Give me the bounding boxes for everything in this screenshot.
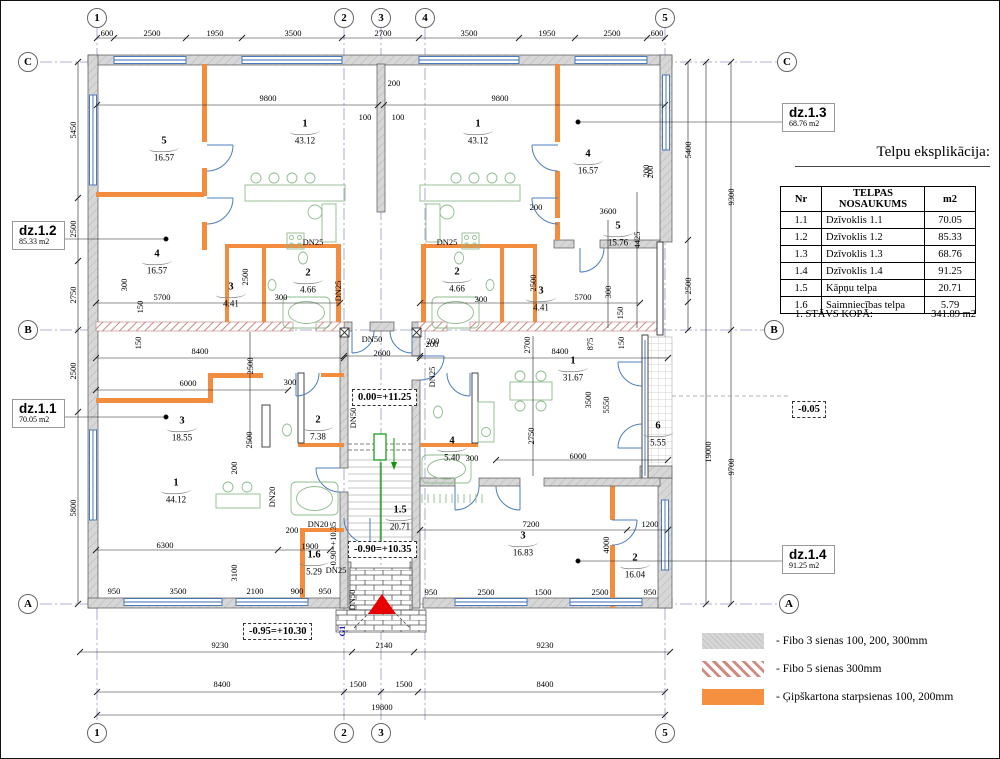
dim-label: 8400 — [192, 347, 209, 356]
dim-label: 2140 — [376, 641, 393, 650]
dim-label: 3500 — [285, 29, 302, 38]
room-label: 416.57 — [573, 149, 603, 175]
explication-cell: 1.2 — [781, 229, 822, 246]
explication-cell: 1.5 — [781, 280, 822, 297]
dim-label: 100 — [392, 113, 405, 122]
dim-label: 2500 — [69, 363, 78, 380]
dim-label: 6000 — [570, 452, 587, 461]
dim-label: 2500 — [144, 29, 161, 38]
explication-cell: Kāpņu telpa — [822, 280, 925, 297]
callout-dz14-area: 91.25 m2 — [789, 562, 827, 570]
dim-label: 3100 — [230, 565, 239, 582]
callout-dz11: dz.1.1 70.05 m2 — [12, 399, 65, 428]
explication-row: 1.3Dzīvoklis 1.368.76 — [781, 246, 976, 263]
grid-bubble-4: 4 — [415, 8, 435, 28]
room-label: 318.55 — [167, 416, 197, 442]
grid-bubble-5: 5 — [655, 723, 675, 743]
explication-table-body: 1.1Dzīvoklis 1.170.051.2Dzīvoklis 1.285.… — [781, 212, 976, 314]
room-arc-icon — [463, 130, 493, 135]
room-label: 27.38 — [303, 415, 333, 441]
dim-label: 2700 — [375, 29, 392, 38]
dim-label: 200 — [530, 203, 543, 212]
dim-label: 150 — [616, 307, 625, 320]
room-label: 1.520.71 — [385, 505, 415, 531]
dim-label: 300 — [284, 378, 297, 387]
dim-label: 2500 — [592, 588, 609, 597]
callout-dz11-name: dz.1.1 — [19, 402, 57, 416]
explication-cell: 91.25 — [925, 263, 976, 280]
dim-label: 300 — [604, 286, 613, 299]
explication-cell: Dzīvoklis 1.3 — [822, 246, 925, 263]
dim-label: 900 — [291, 587, 304, 596]
dim-label: 5450 — [69, 122, 78, 139]
room-arc-icon — [293, 279, 323, 284]
room-arc-icon — [558, 367, 588, 372]
dim-label: 2500 — [684, 278, 693, 295]
callout-dz14: dz.1.4 91.25 m2 — [782, 545, 835, 574]
callout-dz13: dz.1.3 68.76 m2 — [782, 103, 835, 132]
dim-label: 8400 — [552, 347, 569, 356]
dim-label: 3600 — [600, 207, 617, 216]
dim-label: 300 — [275, 293, 288, 302]
dim-label: 8400 — [537, 680, 554, 689]
dim-label: 150 — [136, 301, 145, 314]
room-label: 216.04 — [620, 553, 650, 579]
col-nr: Nr — [781, 187, 822, 212]
dim-label: 875 — [586, 338, 595, 351]
gips-swatch-icon — [702, 689, 764, 705]
dim-label: 9230 — [212, 641, 229, 650]
dim-label: 2500 — [245, 432, 254, 449]
explication-title: Telpu eksplikācija: — [795, 144, 990, 167]
room-label: 1.65.29 — [299, 550, 329, 576]
grid-bubble-5: 5 — [655, 8, 675, 28]
dim-label: 3500 — [170, 587, 187, 596]
dim-label: 1950 — [207, 29, 224, 38]
total-value: 341.89 m2 — [931, 309, 976, 320]
dim-label: DN25 — [334, 281, 343, 302]
legend-item-fibo5: - Fibo 5 sienas 300mm — [702, 661, 881, 677]
dim-label: 9700 — [727, 459, 736, 476]
callout-dz13-name: dz.1.3 — [789, 106, 827, 120]
room-arc-icon — [437, 447, 467, 452]
fibo3-swatch-icon — [702, 633, 764, 649]
level-stair-bottom: -0.90=+10.35 — [348, 541, 417, 558]
room-arc-icon — [573, 160, 603, 165]
floor-plan-sheet: 123451235CBACBA 600250019503500270035001… — [0, 0, 1000, 759]
explication-table: Nr TELPAS NOSAUKUMS m2 1.1Dzīvoklis 1.17… — [780, 186, 976, 314]
explication-row: 1.1Dzīvoklis 1.170.05 — [781, 212, 976, 229]
room-arc-icon — [290, 130, 320, 135]
dim-label: 6300 — [157, 541, 174, 550]
dim-label: G1 — [338, 626, 347, 637]
explication-cell: Dzīvoklis 1.2 — [822, 229, 925, 246]
explication-header-row: Nr TELPAS NOSAUKUMS m2 — [781, 187, 976, 212]
dim-label: 9230 — [537, 641, 554, 650]
room-arc-icon — [385, 516, 415, 521]
room-label: 34.41 — [526, 286, 556, 312]
grid-bubble-2: 2 — [334, 8, 354, 28]
dim-label: 600 — [101, 29, 114, 38]
fixtures — [216, 173, 552, 515]
grid-bubble-A: A — [18, 594, 38, 614]
room-label: 144.12 — [161, 478, 191, 504]
dim-label: DN20 — [268, 487, 277, 508]
explication-total: 1. STĀVS KOPĀ: 341.89 m2 — [795, 309, 976, 320]
dim-label: 2500 — [69, 221, 78, 238]
total-label: 1. STĀVS KOPĀ: — [795, 309, 873, 320]
grid-bubble-1: 1 — [87, 8, 107, 28]
dim-label: 1200 — [642, 520, 659, 529]
grid-bubble-3: 3 — [371, 723, 391, 743]
fibo5-swatch-icon — [702, 661, 764, 677]
room-arc-icon — [526, 297, 556, 302]
room-arc-icon — [442, 278, 472, 283]
dim-label: 2500 — [246, 358, 255, 375]
level-terrace: -0.05 — [792, 401, 826, 418]
dim-label: 5700 — [154, 293, 171, 302]
legend-label-fibo5: - Fibo 5 sienas 300mm — [776, 663, 881, 675]
dim-label: 100 — [359, 113, 372, 122]
room-arc-icon — [161, 489, 191, 494]
col-m2: m2 — [925, 187, 976, 212]
room-arc-icon — [142, 260, 172, 265]
room-arc-icon — [620, 564, 650, 569]
legend-label-gips: - Ģipškartona starpsienas 100, 200mm — [776, 691, 953, 703]
room-label: 24.66 — [293, 268, 323, 294]
dim-label: 300 — [475, 295, 488, 304]
level-stair-top: 0.00=+11.25 — [352, 389, 417, 406]
dim-label: DN25 — [303, 238, 324, 247]
room-label: 24.66 — [442, 267, 472, 293]
dim-label: 2500 — [478, 588, 495, 597]
grid-bubble-C: C — [777, 52, 797, 72]
grid-bubble-1: 1 — [87, 723, 107, 743]
callout-dz11-area: 70.05 m2 — [19, 416, 57, 424]
room-label: 416.57 — [142, 249, 172, 275]
legend-item-fibo3: - Fibo 3 sienas 100, 200, 300mm — [702, 633, 927, 649]
dim-label: 9300 — [727, 189, 736, 206]
room-label: 516.57 — [149, 136, 179, 162]
callout-dz14-name: dz.1.4 — [789, 548, 827, 562]
dim-label: 8400 — [214, 680, 231, 689]
callout-dz12: dz.1.2 85.33 m2 — [12, 221, 65, 250]
legend-label-fibo3: - Fibo 3 sienas 100, 200, 300mm — [776, 635, 927, 647]
dim-label: 1500 — [396, 680, 413, 689]
room-arc-icon — [149, 147, 179, 152]
grid-bubble-2: 2 — [334, 723, 354, 743]
dim-label: 2100 — [247, 587, 264, 596]
grid-bubble-A: A — [779, 594, 799, 614]
dim-label: 2600 — [374, 349, 391, 358]
dim-label: 7200 — [523, 520, 540, 529]
callout-dz13-area: 68.76 m2 — [789, 120, 827, 128]
stairs — [348, 434, 412, 556]
room-label: 45.40 — [437, 436, 467, 462]
callout-dz12-name: dz.1.2 — [19, 224, 57, 238]
dim-label: DN25 — [428, 367, 437, 388]
dim-label: 200 — [642, 165, 651, 178]
dim-label: 150 — [617, 337, 626, 350]
dim-label: 6000 — [180, 379, 197, 388]
dim-label: 950 — [644, 588, 657, 597]
dim-label: 5550 — [602, 397, 611, 414]
dim-label: -0.90=+10.35 — [329, 522, 338, 568]
callout-dz12-area: 85.33 m2 — [19, 238, 57, 246]
dim-label: 2700 — [523, 337, 532, 354]
wall-lr-horizontal — [420, 478, 660, 486]
dim-label: 2500 — [604, 29, 621, 38]
explication-cell: 1.4 — [781, 263, 822, 280]
room-arc-icon — [216, 293, 246, 298]
grid-bubble-C: C — [18, 52, 38, 72]
dim-label: 150 — [134, 337, 143, 350]
dim-label: 19000 — [704, 441, 713, 462]
explication-row: 1.2Dzīvoklis 1.285.33 — [781, 229, 976, 246]
room-label: 34.41 — [216, 282, 246, 308]
dim-label: DN20 — [308, 520, 329, 529]
dim-label: 5400 — [684, 142, 693, 159]
room-arc-icon — [643, 432, 673, 437]
explication-row: 1.5Kāpņu telpa20.71 — [781, 280, 976, 297]
level-porch: -0.95=+10.30 — [243, 623, 312, 640]
dim-label: 3500 — [584, 392, 593, 409]
dim-label: 1950 — [539, 29, 556, 38]
dim-label: 1500 — [350, 680, 367, 689]
dim-label: 4425 — [633, 232, 642, 249]
explication-cell: 70.05 — [925, 212, 976, 229]
dim-label: 9800 — [260, 94, 277, 103]
room-arc-icon — [603, 232, 633, 237]
col-name: TELPAS NOSAUKUMS — [822, 187, 925, 212]
room-label: 65.55 — [643, 421, 673, 447]
dim-label: 200 — [230, 462, 239, 475]
explication-cell: 20.71 — [925, 280, 976, 297]
explication-cell: 1.1 — [781, 212, 822, 229]
explication-row: 1.4Dzīvoklis 1.491.25 — [781, 263, 976, 280]
dim-label: 950 — [319, 587, 332, 596]
room-label: 143.12 — [290, 119, 320, 145]
dim-label: DN50 — [348, 590, 357, 611]
room-label: 515.76 — [603, 221, 633, 247]
dim-label: DN50 — [362, 335, 383, 344]
dim-label: 5700 — [575, 293, 592, 302]
grid-bubble-B: B — [764, 320, 784, 340]
room-arc-icon — [167, 427, 197, 432]
dim-label: 19800 — [371, 703, 392, 712]
room-arc-icon — [508, 542, 538, 547]
legend-item-gips: - Ģipškartona starpsienas 100, 200mm — [702, 689, 953, 705]
dim-label: 300 — [466, 454, 479, 463]
dim-label: 2750 — [527, 428, 536, 445]
dim-label: 3500 — [461, 29, 478, 38]
explication-cell: 85.33 — [925, 229, 976, 246]
room-arc-icon — [299, 561, 329, 566]
explication-cell: 1.3 — [781, 246, 822, 263]
dim-label: 600 — [651, 29, 664, 38]
dim-label: 950 — [108, 587, 121, 596]
explication-cell: Dzīvoklis 1.1 — [822, 212, 925, 229]
dim-label: 9800 — [492, 94, 509, 103]
room-arc-icon — [303, 426, 333, 431]
room-label: 316.83 — [508, 531, 538, 557]
dim-label: 200 — [426, 340, 439, 349]
explication-cell: 68.76 — [925, 246, 976, 263]
dim-label: 5800 — [69, 500, 78, 517]
dim-label: 300 — [120, 279, 129, 292]
grid-bubble-3: 3 — [371, 8, 391, 28]
dim-label: DN25 — [437, 238, 458, 247]
room-label: 131.67 — [558, 356, 588, 382]
dim-label: 4000 — [602, 537, 611, 554]
dim-label: 200 — [388, 79, 401, 88]
dim-label: DN50 — [349, 408, 358, 429]
dim-label: 2750 — [69, 287, 78, 304]
grid-bubble-B: B — [18, 320, 38, 340]
dim-label: 1500 — [535, 588, 552, 597]
room-label: 143.12 — [463, 119, 493, 145]
explication-cell: Dzīvoklis 1.4 — [822, 263, 925, 280]
dim-label: 200 — [286, 526, 299, 535]
dim-label: 950 — [425, 588, 438, 597]
